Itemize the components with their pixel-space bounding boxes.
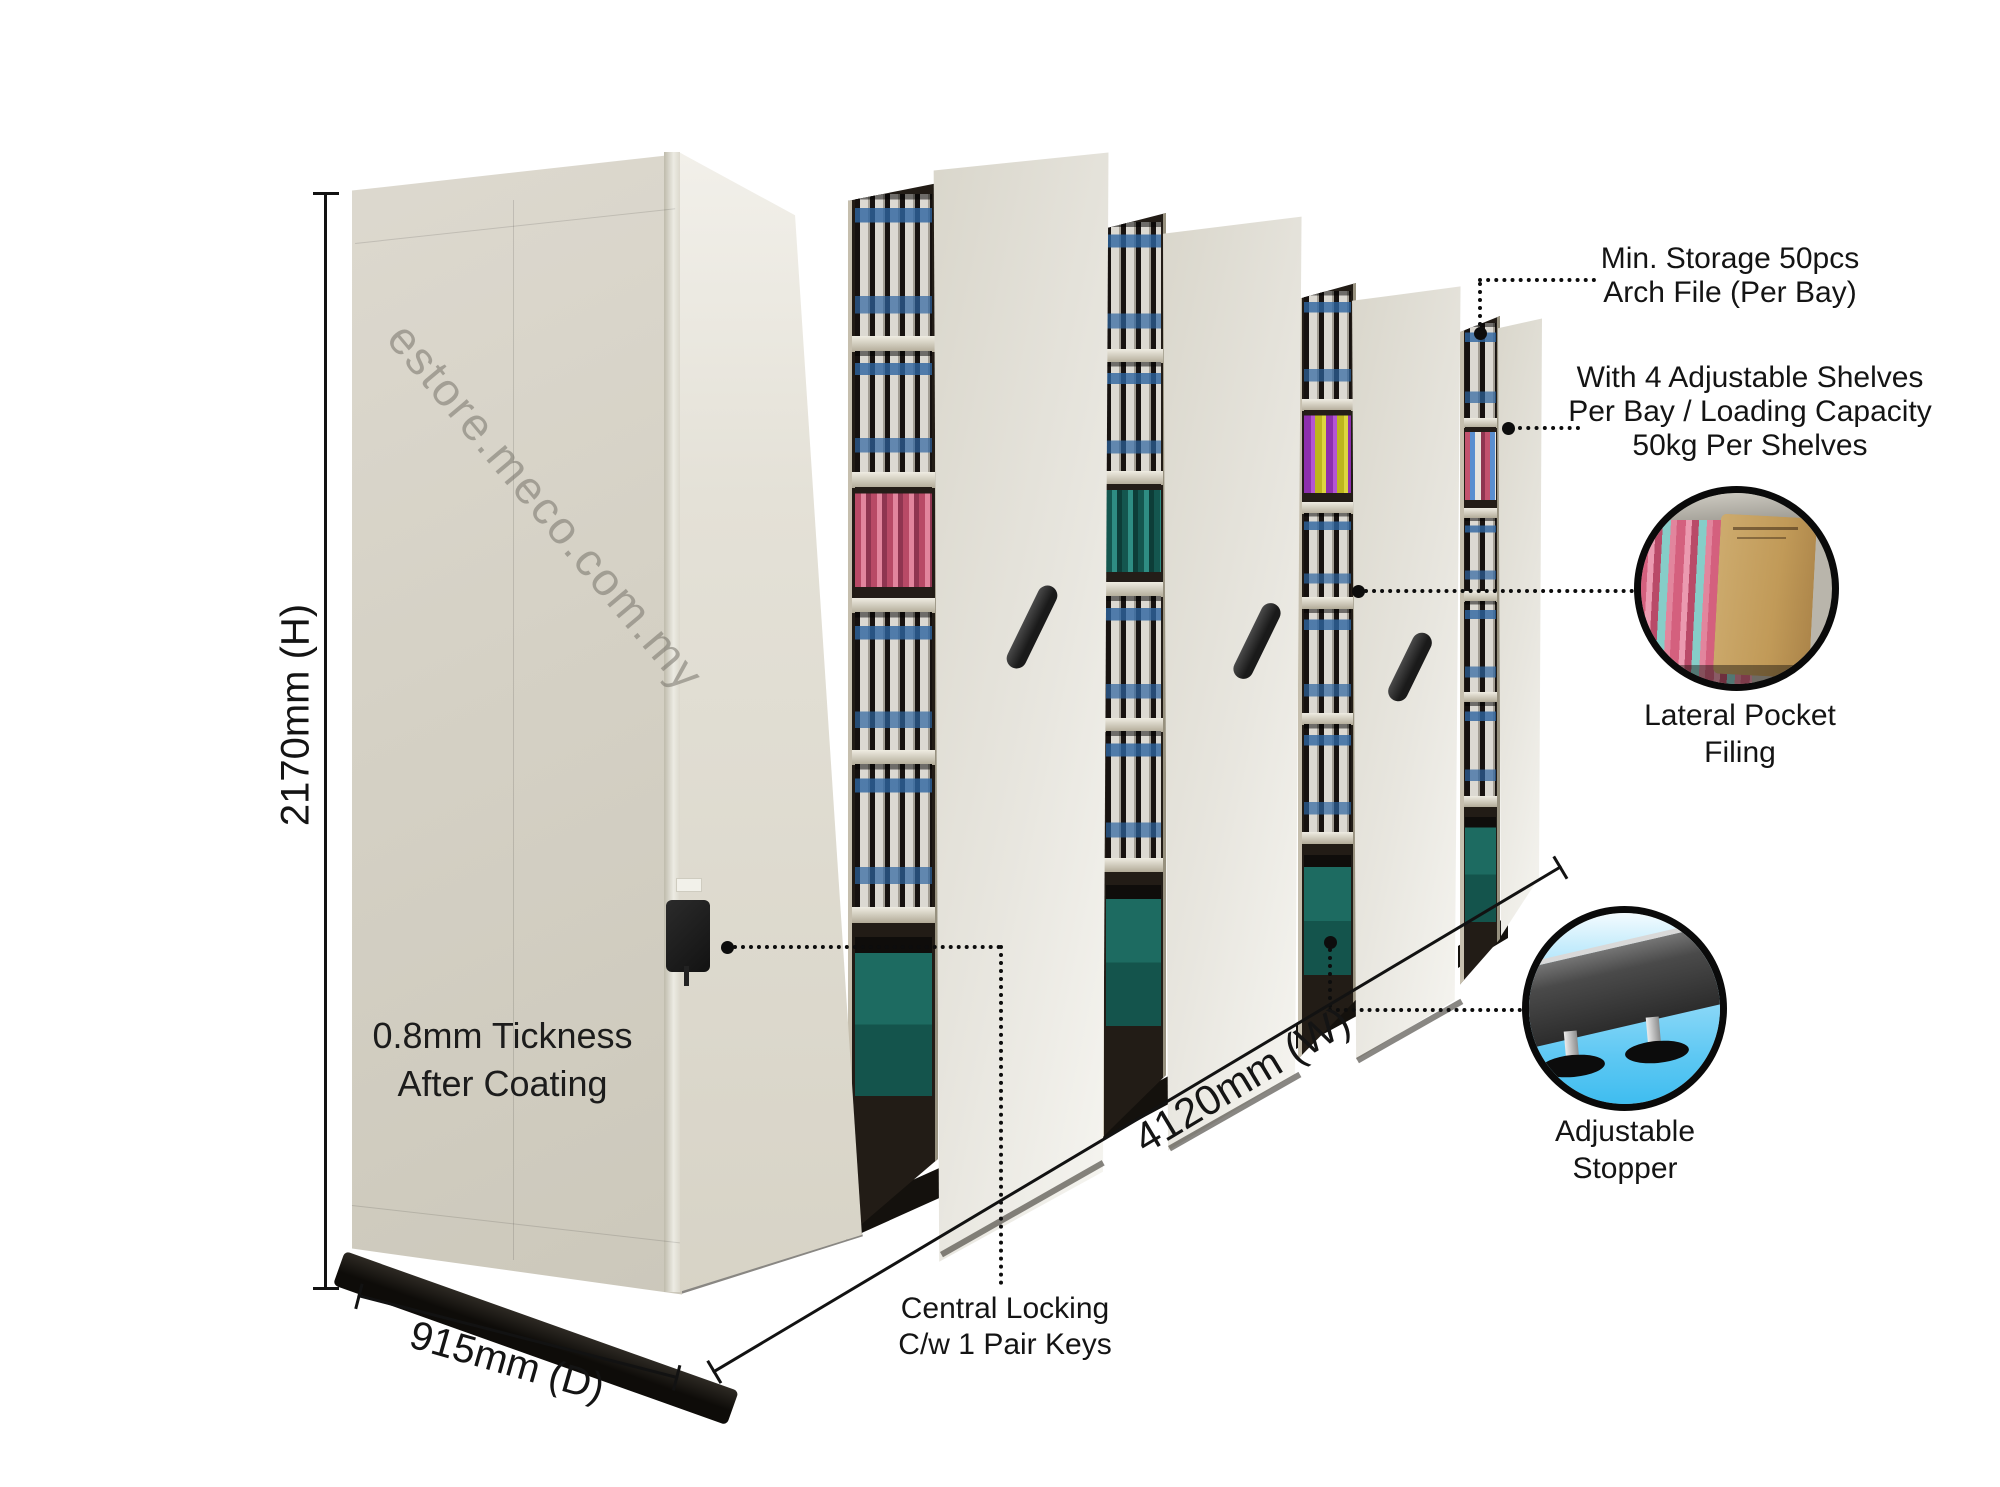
lock-label-plate [676, 878, 702, 892]
callout-line [999, 945, 1003, 1285]
shelf-divider [852, 472, 935, 488]
mobile-bay-panel [1158, 210, 1306, 1160]
shelf-divider [1302, 502, 1353, 514]
shelf-divider [1104, 582, 1163, 596]
locking-line2: C/w 1 Pair Keys [845, 1327, 1165, 1363]
end-cabinet-front-panel [350, 148, 684, 1298]
shelf-divider [1104, 718, 1163, 732]
shelf-divider [1104, 858, 1163, 872]
callout-line [1364, 589, 1634, 593]
hanging-files-row [1465, 427, 1495, 508]
shelf-divider [1302, 597, 1353, 609]
thickness-note-line2: After Coating [330, 1060, 675, 1108]
shelf-divider [852, 750, 935, 766]
shelf-divider [1104, 349, 1163, 363]
stopper-line1: Adjustable [1500, 1113, 1750, 1150]
stopper-line2: Stopper [1500, 1150, 1750, 1187]
lateral-pocket-inset-photo [1634, 486, 1839, 691]
min-storage-note: Min. Storage 50pcs Arch File (Per Bay) [1560, 242, 1900, 310]
adjustable-stopper-inset-photo [1522, 906, 1727, 1111]
shelves-note: With 4 Adjustable Shelves Per Bay / Load… [1555, 361, 1945, 463]
callout-line [1328, 1008, 1522, 1012]
shelf-divider [1302, 713, 1353, 725]
binder-row [1465, 702, 1495, 797]
storage-box-row [1106, 885, 1160, 1026]
thickness-note: 0.8mm Tickness After Coating [330, 1012, 675, 1108]
locking-note: Central Locking C/w 1 Pair Keys [845, 1291, 1165, 1363]
binder-row [1106, 222, 1160, 349]
min-storage-line1: Min. Storage 50pcs [1560, 242, 1900, 276]
bay-shelf-slice [1298, 283, 1356, 1083]
binder-row [1465, 518, 1495, 592]
stopper-note: Adjustable Stopper [1500, 1113, 1750, 1187]
tick-mark [313, 192, 339, 195]
height-dimension-line [324, 192, 327, 1290]
lateral-note: Lateral Pocket Filing [1615, 697, 1865, 771]
bay-shelf-slice [848, 183, 938, 1238]
shelf-divider [1302, 399, 1353, 411]
shelf-divider [852, 598, 935, 614]
inset-pocket-print [1737, 537, 1787, 539]
tick-mark [313, 1287, 339, 1290]
binder-row [855, 764, 931, 906]
shelf-divider [852, 907, 935, 923]
binder-row [1304, 291, 1351, 399]
hanging-files-row [855, 487, 931, 598]
storage-box-row [855, 937, 931, 1095]
shelves-line2: Per Bay / Loading Capacity [1555, 395, 1945, 429]
shelf-divider [1104, 471, 1163, 485]
inset-shadow [1641, 665, 1832, 684]
min-storage-line2: Arch File (Per Bay) [1560, 276, 1900, 310]
height-dimension-label: 2170mm (H) [274, 604, 319, 826]
bay-shelf-slice [1100, 213, 1166, 1153]
binder-row [1304, 724, 1351, 832]
shelves-line1: With 4 Adjustable Shelves [1555, 361, 1945, 395]
shelf-divider [1302, 832, 1353, 844]
binder-row [1304, 609, 1351, 713]
hanging-files-row [1304, 410, 1351, 502]
lock-key [684, 966, 689, 986]
lateral-line2: Filing [1615, 734, 1865, 771]
binder-row [1465, 601, 1495, 692]
tick-mark [1552, 856, 1568, 880]
shelf-divider [1464, 796, 1497, 807]
binder-row [1106, 596, 1160, 718]
callout-dot [1502, 422, 1515, 435]
product-spec-diagram: estore.meco.com.my 0.8mm Tickness After … [0, 0, 2000, 1487]
callout-line [733, 945, 1001, 949]
bay-shelf-slice [1460, 316, 1500, 1016]
callout-line [1478, 282, 1482, 334]
binder-row [855, 351, 931, 472]
hanging-files-row [1106, 484, 1160, 583]
shelf-divider [852, 336, 935, 352]
inset-pocket-print [1733, 527, 1798, 530]
shelves-line3: 50kg Per Shelves [1555, 429, 1945, 463]
binder-row [1106, 362, 1160, 470]
binder-row [855, 612, 931, 749]
mobile-bay-panel [930, 148, 1114, 1273]
thickness-note-line1: 0.8mm Tickness [330, 1012, 675, 1060]
binder-row [1106, 731, 1160, 858]
end-cabinet-corner-strip [664, 152, 680, 1292]
binder-row [855, 194, 931, 336]
binder-row [1304, 513, 1351, 597]
mobile-bay-panel [1495, 312, 1545, 962]
central-lock [666, 900, 710, 972]
end-cabinet-side-panel [678, 148, 868, 1308]
locking-line1: Central Locking [845, 1291, 1165, 1327]
lateral-line1: Lateral Pocket [1615, 697, 1865, 734]
